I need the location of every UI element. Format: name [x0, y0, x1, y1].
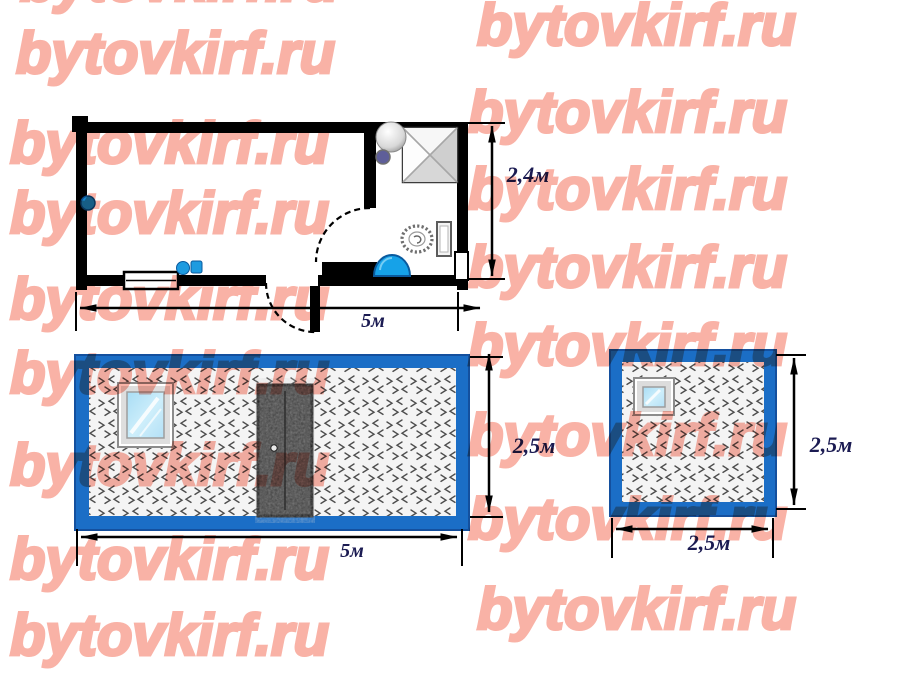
floor-plan: 5м 2,4м	[72, 116, 549, 332]
wall-light-icon	[81, 196, 95, 210]
technical-drawing: 5м 2,4м	[0, 0, 900, 675]
taps-icon	[177, 261, 203, 275]
washbasin-icon	[376, 122, 406, 164]
front-door	[258, 385, 312, 516]
side-window	[634, 378, 674, 415]
plan-window-symbol	[124, 272, 178, 289]
side-width-dimension-label: 2,5м	[687, 530, 731, 555]
side-height-dimension-label: 2,5м	[809, 432, 853, 457]
screenshot-root: 5м 2,4м	[0, 0, 900, 675]
shower-icon	[403, 128, 457, 182]
plan-right-wall-window	[455, 252, 468, 280]
side-elevation: 2,5м 2,5м	[610, 350, 852, 558]
front-width-dimension-label: 5м	[340, 540, 364, 562]
toilet-icon	[402, 222, 451, 256]
front-height-dimension-label: 2,5м	[512, 433, 556, 458]
corner-sink-icon	[374, 255, 410, 276]
front-window	[118, 383, 173, 447]
plan-width-dimension-label: 5м	[361, 310, 385, 332]
bathroom-door-swing	[316, 208, 370, 262]
plan-height-dimension-label: 2,4м	[506, 162, 550, 187]
front-elevation: 5м 2,5м	[75, 354, 555, 566]
door-handle-icon	[271, 445, 277, 451]
